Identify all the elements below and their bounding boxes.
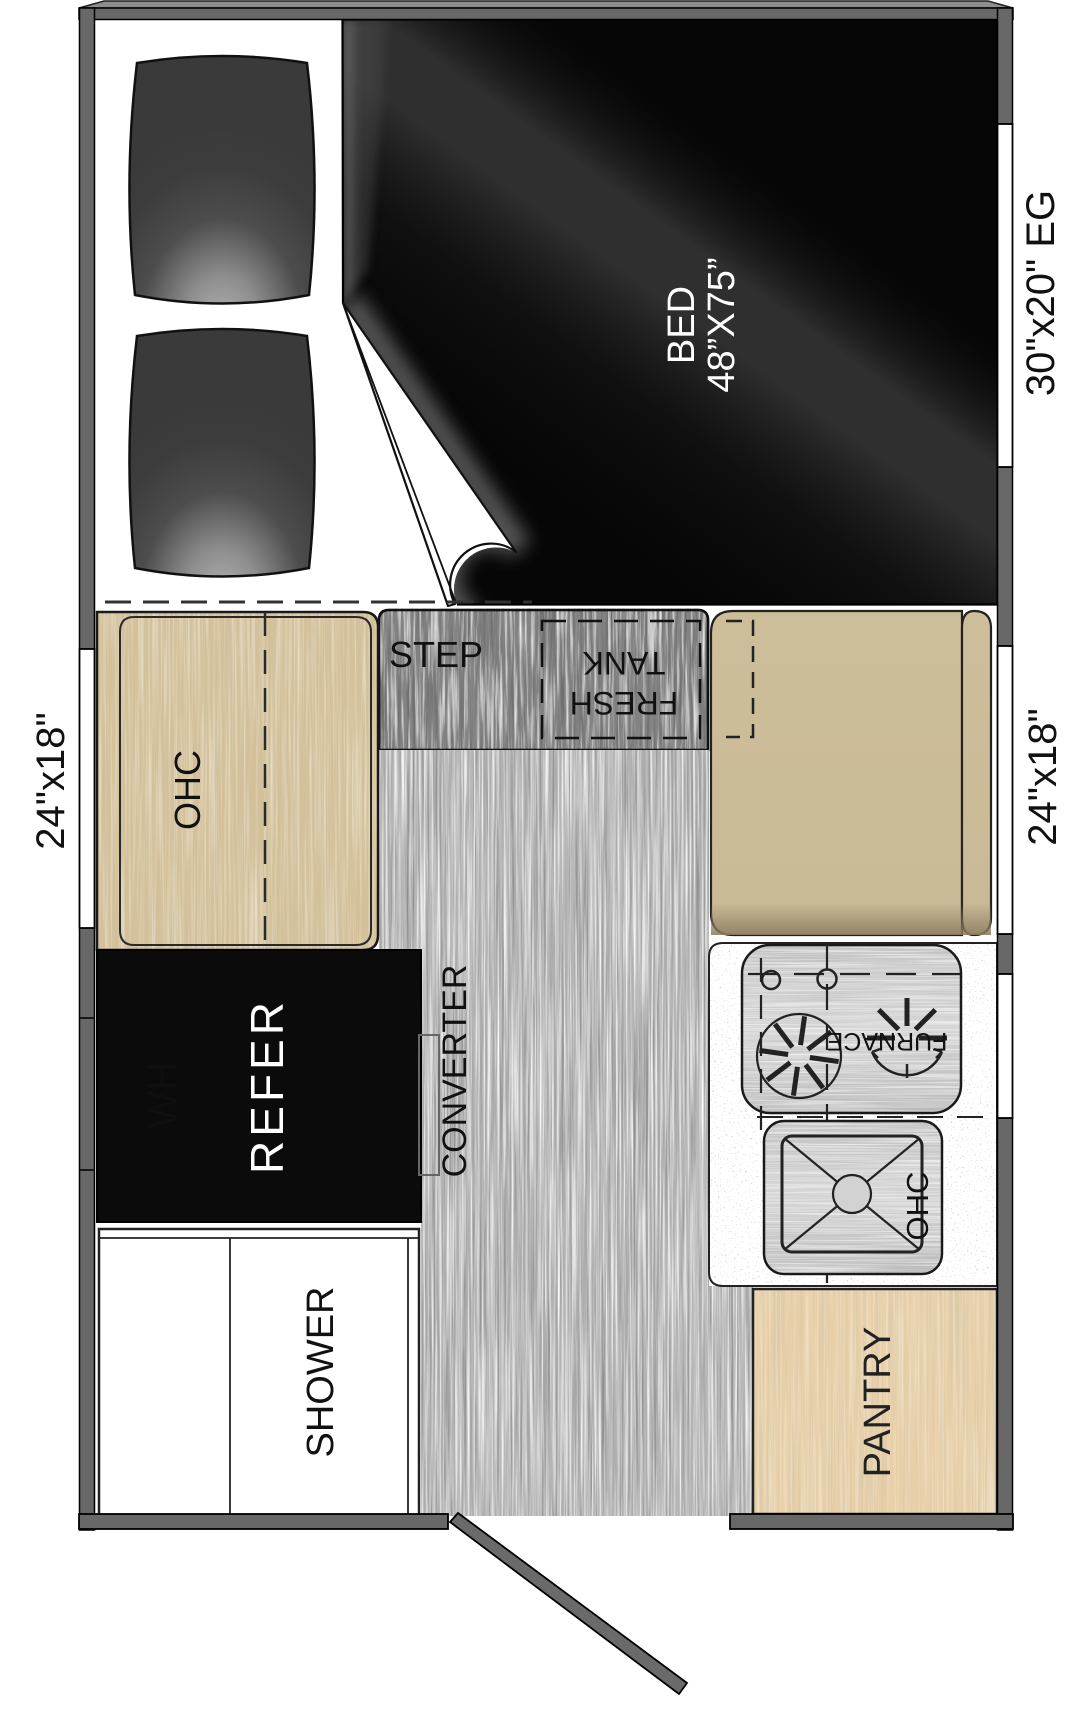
svg-text:FRESH: FRESH — [570, 685, 678, 721]
svg-text:PANTRY: PANTRY — [857, 1327, 899, 1478]
svg-text:FURNACE: FURNACE — [827, 1027, 948, 1055]
svg-text:SHOWER: SHOWER — [300, 1287, 342, 1458]
svg-text:48”X75”: 48”X75” — [701, 257, 743, 392]
svg-text:OHC: OHC — [167, 750, 208, 830]
svg-text:WH: WH — [141, 1062, 185, 1129]
svg-text:30"x20" EG: 30"x20" EG — [1019, 190, 1063, 396]
svg-text:STEP: STEP — [389, 634, 483, 675]
svg-text:BED: BED — [661, 286, 703, 364]
svg-text:24"x18": 24"x18" — [1021, 708, 1065, 845]
svg-text:CONVERTER: CONVERTER — [436, 965, 474, 1178]
svg-text:REFER: REFER — [241, 998, 293, 1174]
svg-text:OHC: OHC — [900, 1172, 935, 1241]
svg-text:24"x18": 24"x18" — [29, 712, 73, 849]
svg-text:TANK: TANK — [583, 645, 666, 681]
